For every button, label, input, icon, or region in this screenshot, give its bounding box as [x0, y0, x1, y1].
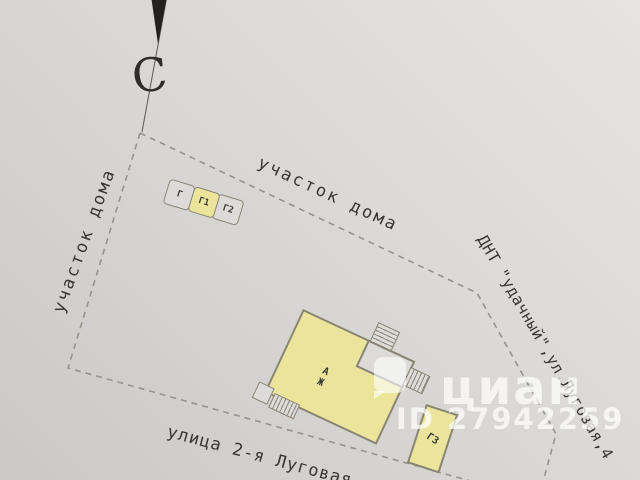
house-label-line2: Ж — [316, 376, 326, 389]
site-plan-photo: С участок дома участок дома ДНТ "удачный… — [0, 0, 640, 480]
north-arrow-icon — [151, 0, 167, 44]
north-label: С — [129, 46, 170, 103]
garage-label: Г3 — [425, 431, 441, 447]
house-label: А Ж — [303, 360, 344, 395]
